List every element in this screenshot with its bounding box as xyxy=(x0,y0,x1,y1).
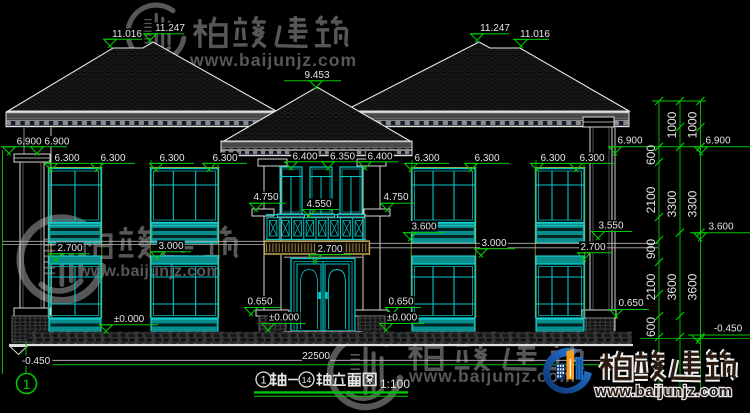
svg-text:1000: 1000 xyxy=(665,111,679,138)
svg-text:0.650: 0.650 xyxy=(247,297,272,308)
svg-text:2100: 2100 xyxy=(644,273,658,300)
svg-text:3.550: 3.550 xyxy=(598,221,623,232)
svg-text:±0.000: ±0.000 xyxy=(387,313,418,324)
svg-text:6.300: 6.300 xyxy=(212,153,237,164)
svg-text:3.000: 3.000 xyxy=(158,241,183,252)
svg-text:3300: 3300 xyxy=(686,190,700,217)
svg-text:11.247: 11.247 xyxy=(480,23,510,34)
svg-text:11.016: 11.016 xyxy=(112,29,142,40)
svg-text:-0.450: -0.450 xyxy=(22,356,51,367)
svg-text:1: 1 xyxy=(260,375,266,387)
svg-text:4.550: 4.550 xyxy=(306,199,331,210)
svg-text:3600: 3600 xyxy=(686,273,700,300)
svg-text:2.700: 2.700 xyxy=(317,244,342,255)
svg-text:6.300: 6.300 xyxy=(159,153,184,164)
svg-text:±0.000: ±0.000 xyxy=(114,314,145,325)
svg-text:3300: 3300 xyxy=(665,190,679,217)
svg-text:2100: 2100 xyxy=(644,186,658,213)
svg-text:3.600: 3.600 xyxy=(411,222,436,233)
svg-text:1:100: 1:100 xyxy=(380,377,410,391)
svg-text:3600: 3600 xyxy=(665,273,679,300)
svg-text:1: 1 xyxy=(23,376,31,392)
svg-text:11.247: 11.247 xyxy=(155,23,185,34)
svg-text:0.650: 0.650 xyxy=(618,298,643,309)
svg-text:11.016: 11.016 xyxy=(520,29,550,40)
svg-text:6.300: 6.300 xyxy=(474,153,499,164)
svg-text:6.900: 6.900 xyxy=(705,136,730,147)
svg-text:9.453: 9.453 xyxy=(304,70,329,81)
svg-text:14: 14 xyxy=(302,375,312,385)
svg-text:6.900: 6.900 xyxy=(617,136,642,147)
svg-text:600: 600 xyxy=(644,145,658,165)
svg-text:4.750: 4.750 xyxy=(253,192,278,203)
svg-text:600: 600 xyxy=(644,317,658,337)
svg-text:-0.450: -0.450 xyxy=(714,324,743,335)
svg-text:6.300: 6.300 xyxy=(540,153,565,164)
svg-text:0.650: 0.650 xyxy=(388,297,413,308)
svg-text:www.baijunjz.com: www.baijunjz.com xyxy=(594,383,732,400)
svg-text:4.750: 4.750 xyxy=(383,192,408,203)
svg-text:3.600: 3.600 xyxy=(708,222,733,233)
svg-text:6.900 6.900: 6.900 6.900 xyxy=(17,137,70,148)
svg-text:www.baijunjz.com: www.baijunjz.com xyxy=(189,50,357,70)
svg-text:6.300: 6.300 xyxy=(54,153,79,164)
svg-text:±0.000: ±0.000 xyxy=(269,313,300,324)
svg-text:6.400: 6.400 xyxy=(367,152,392,163)
svg-text:3.000: 3.000 xyxy=(481,238,506,249)
svg-text:22500: 22500 xyxy=(302,351,330,362)
svg-text:1000: 1000 xyxy=(686,111,700,138)
svg-text:6.400: 6.400 xyxy=(292,152,317,163)
svg-text:2.700: 2.700 xyxy=(57,243,82,254)
svg-text:6.350: 6.350 xyxy=(330,152,355,163)
svg-text:6.300: 6.300 xyxy=(414,153,439,164)
svg-text:6.300: 6.300 xyxy=(100,153,125,164)
svg-text:2.700: 2.700 xyxy=(580,242,605,253)
svg-text:6.300: 6.300 xyxy=(579,153,604,164)
svg-text:900: 900 xyxy=(644,239,658,259)
